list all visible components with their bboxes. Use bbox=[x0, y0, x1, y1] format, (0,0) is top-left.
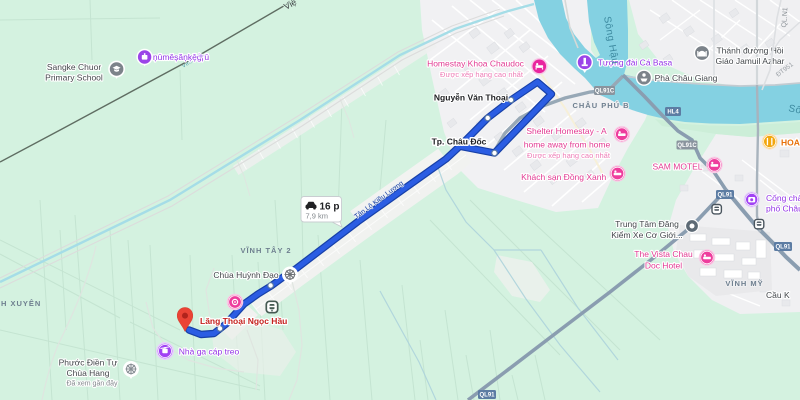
svg-text:VĨNH TÂY 2: VĨNH TÂY 2 bbox=[240, 246, 291, 255]
svg-text:QL.N1: QL.N1 bbox=[781, 7, 789, 28]
svg-text:Shelter Homestay - A: Shelter Homestay - A bbox=[526, 126, 607, 136]
svg-text:Trung Tâm Đăng: Trung Tâm Đăng bbox=[615, 219, 679, 229]
svg-text:SAM MOTEL: SAM MOTEL bbox=[652, 162, 702, 172]
svg-text:QL91: QL91 bbox=[479, 393, 495, 399]
svg-text:phố Châu: phố Châu bbox=[766, 204, 800, 214]
svg-text:Doc Hotel: Doc Hotel bbox=[645, 261, 682, 271]
svg-text:Chùa Hang: Chùa Hang bbox=[66, 368, 109, 378]
svg-text:Khách sạn Đồng Xanh: Khách sạn Đồng Xanh bbox=[521, 172, 606, 182]
svg-text:QL91C: QL91C bbox=[595, 89, 615, 95]
svg-text:VĨNH MỸ: VĨNH MỸ bbox=[725, 279, 763, 288]
svg-text:Được xếp hạng cao nhất: Được xếp hạng cao nhất bbox=[527, 151, 611, 160]
svg-text:Homestay Khoa Chaudoc: Homestay Khoa Chaudoc bbox=[427, 59, 525, 69]
svg-text:H XUYÊN: H XUYÊN bbox=[1, 299, 41, 308]
svg-text:HL4: HL4 bbox=[667, 110, 679, 116]
svg-text:Cầu K: Cầu K bbox=[766, 290, 790, 300]
svg-text:Được xếp hạng cao nhất: Được xếp hạng cao nhất bbox=[440, 70, 524, 79]
svg-text:Cống chào: Cống chào bbox=[766, 193, 800, 203]
svg-text:Giáo Jamuil Azhar: Giáo Jamuil Azhar bbox=[716, 56, 785, 66]
svg-text:Lăng Thoại Ngọc Hầu: Lăng Thoại Ngọc Hầu bbox=[200, 316, 287, 326]
svg-text:QL91C: QL91C bbox=[677, 143, 697, 149]
svg-text:Kiểm Xe Cơ Giới...: Kiểm Xe Cơ Giới... bbox=[611, 230, 683, 240]
svg-text:Chùa Huỳnh Đạo: Chùa Huỳnh Đạo bbox=[213, 270, 278, 280]
svg-text:Đã xem gần đây: Đã xem gần đây bbox=[67, 379, 118, 388]
svg-text:CHÂU PHÚ B: CHÂU PHÚ B bbox=[572, 101, 629, 110]
svg-text:Phà Châu Giang: Phà Châu Giang bbox=[655, 73, 718, 83]
svg-text:Tp. Châu Đốc: Tp. Châu Đốc bbox=[432, 137, 487, 147]
svg-text:QL91: QL91 bbox=[717, 193, 733, 199]
svg-text:Nguyễn Văn Thoại: Nguyễn Văn Thoại bbox=[434, 93, 508, 103]
svg-text:home away from home: home away from home bbox=[524, 140, 611, 150]
svg-text:QL91: QL91 bbox=[775, 245, 791, 251]
svg-text:Primary School: Primary School bbox=[45, 73, 103, 83]
svg-text:Nhà ga cáp treo: Nhà ga cáp treo bbox=[179, 347, 240, 357]
svg-text:Phước Điền Tự: Phước Điền Tự bbox=[59, 358, 118, 368]
svg-text:HOA: HOA bbox=[781, 138, 800, 148]
svg-text:The Vista Chau: The Vista Chau bbox=[634, 249, 693, 259]
svg-text:Sangke Chuor: Sangke Chuor bbox=[47, 62, 102, 72]
svg-text:7,9 km: 7,9 km bbox=[306, 212, 329, 221]
